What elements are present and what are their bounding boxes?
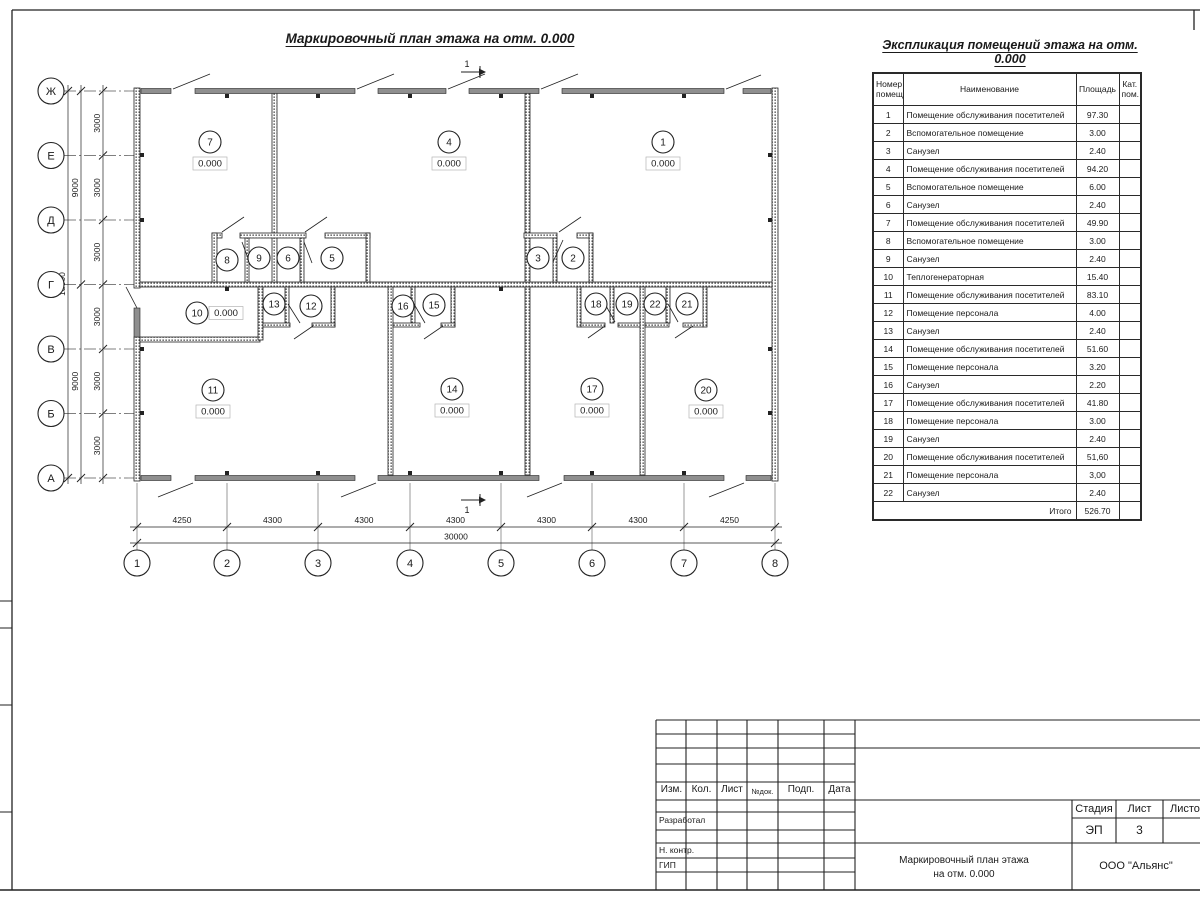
room-number: 8 xyxy=(224,256,230,267)
room-number: 7 xyxy=(207,138,213,149)
wall-segment xyxy=(618,323,640,327)
dimension-label: 4300 xyxy=(537,515,556,525)
door-swing xyxy=(294,326,313,339)
room-number: 10 xyxy=(191,309,203,320)
room-number: 11 xyxy=(208,386,219,397)
dimension-label: 30000 xyxy=(444,532,468,542)
schedule-cell-number: 2 xyxy=(873,124,903,142)
schedule-row: 17Помещение обслуживания посетителей41.8… xyxy=(873,394,1141,412)
schedule-cell-category xyxy=(1119,322,1141,340)
titleblock-col-data: Дата xyxy=(824,784,855,795)
titleblock-role-gip: ГИП xyxy=(659,860,719,870)
room-number: 1 xyxy=(660,138,666,149)
schedule-cell-number: 6 xyxy=(873,196,903,214)
window-segment xyxy=(743,89,771,94)
schedule-cell-name: Вспомогательное помещение xyxy=(903,178,1076,196)
column-nub xyxy=(408,471,412,475)
window-segment xyxy=(195,89,355,94)
column-nub xyxy=(768,411,772,415)
schedule-cell-category xyxy=(1119,250,1141,268)
column-nub xyxy=(499,471,503,475)
schedule-cell-area: 3.20 xyxy=(1076,358,1119,376)
schedule-cell-number: 4 xyxy=(873,160,903,178)
dimension-label: 3000 xyxy=(92,243,102,262)
titleblock-col-doc: №док. xyxy=(747,787,778,796)
schedule-row: 22Санузел2.40 xyxy=(873,484,1141,502)
schedule-cell-area: 97.30 xyxy=(1076,106,1119,124)
schedule-cell-area: 3.00 xyxy=(1076,124,1119,142)
schedule-cell-number: 13 xyxy=(873,322,903,340)
wall-segment xyxy=(331,287,335,327)
wall-segment xyxy=(272,93,277,282)
room-number: 14 xyxy=(446,385,458,396)
door-swing xyxy=(588,326,605,338)
dimension-label: 9000 xyxy=(70,372,80,391)
schedule-cell-category xyxy=(1119,124,1141,142)
schedule-row: 7Помещение обслуживания посетителей49.90 xyxy=(873,214,1141,232)
wall-segment xyxy=(393,323,420,327)
door-swing xyxy=(288,304,300,323)
schedule-cell-category xyxy=(1119,106,1141,124)
wall-segment xyxy=(300,238,304,282)
schedule-cell-number: 19 xyxy=(873,430,903,448)
dimension-label: 4250 xyxy=(173,515,192,525)
wall-segment xyxy=(451,287,455,327)
column-nub xyxy=(140,347,144,351)
window-segment xyxy=(746,476,771,481)
window-segment xyxy=(141,89,171,94)
wall-segment xyxy=(140,337,260,342)
schedule-cell-name: Санузел xyxy=(903,484,1076,502)
schedule-row: 21Помещение персонала3,00 xyxy=(873,466,1141,484)
column-nub xyxy=(499,287,503,291)
room-number: 3 xyxy=(535,254,541,265)
column-nub xyxy=(682,94,686,98)
schedule-row: 9Санузел2.40 xyxy=(873,250,1141,268)
window-segment xyxy=(141,476,171,481)
room-number: 18 xyxy=(590,300,602,311)
room-number: 21 xyxy=(681,300,693,311)
room-number: 12 xyxy=(305,302,317,313)
column-nub xyxy=(225,471,229,475)
door-swing xyxy=(357,74,394,89)
schedule-total-row: Итого 526.70 xyxy=(873,502,1141,521)
door-swing xyxy=(173,74,210,89)
titleblock-doc-title-line2: на отм. 0.000 xyxy=(860,869,1068,880)
dimension-label: 4300 xyxy=(629,515,648,525)
door-swing xyxy=(126,287,137,308)
schedule-header-category: Кат. пом. xyxy=(1119,73,1141,106)
axis-label: 2 xyxy=(224,558,230,570)
schedule-cell-number: 17 xyxy=(873,394,903,412)
plan-title: Маркировочный план этажа на отм. 0.000 xyxy=(240,31,620,46)
schedule-cell-number: 18 xyxy=(873,412,903,430)
wall-segment xyxy=(134,337,140,481)
schedule-row: 14Помещение обслуживания посетителей51.6… xyxy=(873,340,1141,358)
window-segment xyxy=(564,476,724,481)
titleblock-sheet-label: Лист xyxy=(1116,803,1163,815)
window-segment xyxy=(378,476,539,481)
axis-label: 8 xyxy=(772,558,778,570)
room-number: 9 xyxy=(256,254,262,265)
schedule-cell-name: Помещение персонала xyxy=(903,466,1076,484)
schedule-cell-area: 2.40 xyxy=(1076,484,1119,502)
column-nub xyxy=(225,287,229,291)
schedule-cell-name: Санузел xyxy=(903,250,1076,268)
schedule-cell-area: 2.20 xyxy=(1076,376,1119,394)
column-nub xyxy=(590,94,594,98)
wall-segment xyxy=(524,233,557,238)
schedule-row: 4Помещение обслуживания посетителей94.20 xyxy=(873,160,1141,178)
room-number: 4 xyxy=(446,138,452,149)
door-swing xyxy=(675,326,693,338)
schedule-cell-name: Помещение обслуживания посетителей xyxy=(903,160,1076,178)
titleblock-sheet-value: 3 xyxy=(1116,823,1163,837)
door-swing xyxy=(448,74,485,89)
schedule-header-name: Наименование xyxy=(903,73,1076,106)
axis-label: Ж xyxy=(46,86,56,98)
door-swing xyxy=(541,74,578,89)
schedule-header-area: Площадь xyxy=(1076,73,1119,106)
schedule-row: 1Помещение обслуживания посетителей97.30 xyxy=(873,106,1141,124)
schedule-cell-category xyxy=(1119,358,1141,376)
schedule-cell-area: 83.10 xyxy=(1076,286,1119,304)
axis-label: 4 xyxy=(407,558,413,570)
schedule-cell-name: Санузел xyxy=(903,376,1076,394)
schedule-row: 16Санузел2.20 xyxy=(873,376,1141,394)
schedule-row: 3Санузел2.40 xyxy=(873,142,1141,160)
schedule-cell-number: 20 xyxy=(873,448,903,466)
schedule-cell-number: 1 xyxy=(873,106,903,124)
axis-label: Б xyxy=(47,409,54,421)
schedule-cell-number: 14 xyxy=(873,340,903,358)
schedule-cell-category xyxy=(1119,376,1141,394)
column-nub xyxy=(590,471,594,475)
axis-label: В xyxy=(47,344,54,356)
schedule-cell-area: 2.40 xyxy=(1076,250,1119,268)
column-nub xyxy=(408,94,412,98)
column-nub xyxy=(140,411,144,415)
room-number: 17 xyxy=(586,385,598,396)
schedule-cell-category xyxy=(1119,412,1141,430)
schedule-cell-area: 94.20 xyxy=(1076,160,1119,178)
schedule-cell-category xyxy=(1119,214,1141,232)
schedule-cell-number: 9 xyxy=(873,250,903,268)
schedule-row: 10Теплогенераторная15.40 xyxy=(873,268,1141,286)
schedule-row: 12Помещение персонала4.00 xyxy=(873,304,1141,322)
column-nub xyxy=(225,94,229,98)
wall-segment xyxy=(640,287,645,475)
room-number: 22 xyxy=(649,300,661,311)
door-swing xyxy=(527,483,562,497)
schedule-cell-number: 21 xyxy=(873,466,903,484)
schedule-total-value: 526.70 xyxy=(1076,502,1119,521)
schedule-cell-name: Помещение персонала xyxy=(903,304,1076,322)
column-nub xyxy=(768,347,772,351)
section-mark-label: 1 xyxy=(464,505,469,515)
column-nub xyxy=(682,471,686,475)
schedule-cell-area: 2.40 xyxy=(1076,430,1119,448)
schedule-cell-area: 2.40 xyxy=(1076,322,1119,340)
schedule-cell-category xyxy=(1119,232,1141,250)
elevation-label: 0.000 xyxy=(580,406,604,417)
window-segment xyxy=(562,89,724,94)
schedule-cell-area: 2.40 xyxy=(1076,196,1119,214)
wall-segment xyxy=(703,287,707,327)
axis-label: 3 xyxy=(315,558,321,570)
schedule-cell-category xyxy=(1119,142,1141,160)
dimension-label: 3000 xyxy=(92,372,102,391)
elevation-label: 0.000 xyxy=(437,159,461,170)
schedule-cell-number: 12 xyxy=(873,304,903,322)
window-segment xyxy=(195,476,355,481)
titleblock-col-izm: Изм. xyxy=(657,784,686,795)
schedule-cell-number: 10 xyxy=(873,268,903,286)
elevation-label: 0.000 xyxy=(214,308,238,319)
dimension-label: 3000 xyxy=(92,178,102,197)
schedule-cell-category xyxy=(1119,430,1141,448)
schedule-cell-area: 15.40 xyxy=(1076,268,1119,286)
elevation-label: 0.000 xyxy=(201,407,225,418)
column-nub xyxy=(140,218,144,222)
wall-segment xyxy=(366,233,370,282)
schedule-cell-name: Помещение персонала xyxy=(903,412,1076,430)
drawing-sheet: 3000300030003000300030009000900018000425… xyxy=(0,0,1200,900)
schedule-cell-name: Помещение обслуживания посетителей xyxy=(903,214,1076,232)
schedule-row: 2Вспомогательное помещение3.00 xyxy=(873,124,1141,142)
wall-segment xyxy=(577,287,581,327)
door-swing xyxy=(158,483,193,497)
wall-segment xyxy=(645,323,669,327)
schedule-cell-category xyxy=(1119,340,1141,358)
door-swing xyxy=(222,217,244,232)
wall-segment xyxy=(610,287,614,323)
axis-label: А xyxy=(47,473,55,485)
dimension-label: 4250 xyxy=(720,515,739,525)
wall-segment xyxy=(263,323,290,327)
door-swing xyxy=(341,483,376,497)
titleblock-role-developed: Разработал xyxy=(659,815,719,825)
schedule-cell-name: Санузел xyxy=(903,142,1076,160)
elevation-label: 0.000 xyxy=(440,406,464,417)
column-nub xyxy=(768,153,772,157)
schedule-cell-number: 7 xyxy=(873,214,903,232)
room-number: 6 xyxy=(285,254,291,265)
elevation-label: 0.000 xyxy=(198,159,222,170)
axis-label: 6 xyxy=(589,558,595,570)
schedule-cell-number: 15 xyxy=(873,358,903,376)
room-number: 20 xyxy=(700,386,712,397)
titleblock-stage-value: ЭП xyxy=(1072,823,1116,837)
axis-label: Е xyxy=(47,151,54,163)
axis-label: 7 xyxy=(681,558,687,570)
schedule-cell-area: 2.40 xyxy=(1076,142,1119,160)
schedule-cell-name: Санузел xyxy=(903,322,1076,340)
column-nub xyxy=(499,94,503,98)
schedule-cell-number: 5 xyxy=(873,178,903,196)
schedule-cell-area: 6.00 xyxy=(1076,178,1119,196)
column-nub xyxy=(140,153,144,157)
schedule-header-row: Номер помещ. Наименование Площадь Кат. п… xyxy=(873,73,1141,106)
titleblock-col-kol: Кол. xyxy=(686,784,717,795)
window-segment xyxy=(469,89,539,94)
titleblock-col-list: Лист xyxy=(717,784,747,795)
wall-segment xyxy=(140,282,772,287)
column-nub xyxy=(316,471,320,475)
schedule-total-category xyxy=(1119,502,1141,521)
room-number: 16 xyxy=(397,302,409,313)
schedule-cell-name: Санузел xyxy=(903,196,1076,214)
schedule-cell-category xyxy=(1119,304,1141,322)
schedule-cell-area: 51.60 xyxy=(1076,340,1119,358)
column-nub xyxy=(768,218,772,222)
schedule-cell-name: Помещение обслуживания посетителей xyxy=(903,286,1076,304)
wall-segment xyxy=(666,287,670,323)
schedule-cell-area: 4.00 xyxy=(1076,304,1119,322)
axis-label: Д xyxy=(47,215,55,227)
titleblock-stage-label: Стадия xyxy=(1072,803,1116,815)
schedule-cell-name: Санузел xyxy=(903,430,1076,448)
titleblock-col-podp: Подп. xyxy=(778,784,824,795)
schedule-cell-area: 3.00 xyxy=(1076,412,1119,430)
schedule-cell-name: Теплогенераторная xyxy=(903,268,1076,286)
schedule-cell-category xyxy=(1119,196,1141,214)
schedule-cell-name: Помещение обслуживания посетителей xyxy=(903,340,1076,358)
schedule-cell-number: 3 xyxy=(873,142,903,160)
wall-segment xyxy=(312,323,335,327)
room-schedule-table: Номер помещ. Наименование Площадь Кат. п… xyxy=(872,72,1142,521)
schedule-cell-name: Помещение обслуживания посетителей xyxy=(903,106,1076,124)
schedule-row: 20Помещение обслуживания посетителей51,6… xyxy=(873,448,1141,466)
section-mark-label: 1 xyxy=(464,59,469,69)
schedule-cell-number: 11 xyxy=(873,286,903,304)
schedule-cell-category xyxy=(1119,394,1141,412)
room-number: 5 xyxy=(329,254,335,265)
schedule-cell-name: Вспомогательное помещение xyxy=(903,232,1076,250)
door-swing xyxy=(305,217,327,232)
wall-segment xyxy=(589,233,593,282)
schedule-cell-name: Помещение персонала xyxy=(903,358,1076,376)
schedule-cell-category xyxy=(1119,178,1141,196)
elevation-label: 0.000 xyxy=(694,407,718,418)
schedule-cell-category xyxy=(1119,448,1141,466)
column-nub xyxy=(316,94,320,98)
door-swing xyxy=(424,326,443,339)
schedule-title: Экспликация помещений этажа на отм. 0.00… xyxy=(865,38,1155,66)
schedule-cell-category xyxy=(1119,484,1141,502)
titleblock-sheets-label: Листов xyxy=(1170,803,1200,815)
axis-label: 1 xyxy=(134,558,140,570)
wall-segment xyxy=(134,88,140,288)
schedule-row: 11Помещение обслуживания посетителей83.1… xyxy=(873,286,1141,304)
dimension-label: 9000 xyxy=(70,178,80,197)
wall-segment xyxy=(258,287,263,340)
schedule-total-label: Итого xyxy=(873,502,1076,521)
dimension-label: 4300 xyxy=(355,515,374,525)
room-number: 13 xyxy=(268,300,280,311)
schedule-cell-area: 3,00 xyxy=(1076,466,1119,484)
schedule-row: 13Санузел2.40 xyxy=(873,322,1141,340)
dimension-label: 3000 xyxy=(92,307,102,326)
axis-label: Г xyxy=(48,280,54,292)
schedule-cell-area: 51,60 xyxy=(1076,448,1119,466)
window-segment xyxy=(378,89,446,94)
schedule-cell-area: 41.80 xyxy=(1076,394,1119,412)
room-number: 15 xyxy=(428,301,440,312)
schedule-row: 15Помещение персонала3.20 xyxy=(873,358,1141,376)
door-swing xyxy=(559,217,581,232)
schedule-cell-category xyxy=(1119,268,1141,286)
wall-segment xyxy=(581,323,605,327)
schedule-cell-category xyxy=(1119,466,1141,484)
schedule-row: 6Санузел2.40 xyxy=(873,196,1141,214)
wall-segment xyxy=(388,287,393,475)
schedule-header-number: Номер помещ. xyxy=(873,73,903,106)
schedule-cell-number: 16 xyxy=(873,376,903,394)
schedule-row: 8Вспомогательное помещение3.00 xyxy=(873,232,1141,250)
schedule-row: 5Вспомогательное помещение6.00 xyxy=(873,178,1141,196)
schedule-cell-area: 3.00 xyxy=(1076,232,1119,250)
titleblock-doc-title-line1: Маркировочный план этажа xyxy=(860,855,1068,866)
wall-segment xyxy=(240,233,306,238)
room-number: 2 xyxy=(570,254,576,265)
door-swing xyxy=(709,483,744,497)
axis-label: 5 xyxy=(498,558,504,570)
schedule-cell-area: 49.90 xyxy=(1076,214,1119,232)
wall-segment xyxy=(772,88,778,481)
window-segment xyxy=(134,308,140,337)
schedule-cell-category xyxy=(1119,160,1141,178)
schedule-row: 18Помещение персонала3.00 xyxy=(873,412,1141,430)
door-swing xyxy=(304,242,312,263)
wall-segment xyxy=(525,287,530,475)
wall-segment xyxy=(325,233,370,238)
dimension-label: 3000 xyxy=(92,114,102,133)
schedule-cell-category xyxy=(1119,286,1141,304)
schedule-cell-name: Вспомогательное помещение xyxy=(903,124,1076,142)
titleblock-company: ООО "Альянс" xyxy=(1074,860,1198,872)
room-number: 19 xyxy=(621,300,633,311)
schedule-cell-name: Помещение обслуживания посетителей xyxy=(903,448,1076,466)
schedule-row: 19Санузел2.40 xyxy=(873,430,1141,448)
door-swing xyxy=(726,75,761,89)
elevation-label: 0.000 xyxy=(651,159,675,170)
dimension-label: 4300 xyxy=(263,515,282,525)
titleblock-role-ncontrol: Н. контр. xyxy=(659,845,719,855)
dimension-label: 3000 xyxy=(92,436,102,455)
schedule-cell-number: 8 xyxy=(873,232,903,250)
schedule-cell-number: 22 xyxy=(873,484,903,502)
dimension-label: 4300 xyxy=(446,515,465,525)
schedule-cell-name: Помещение обслуживания посетителей xyxy=(903,394,1076,412)
